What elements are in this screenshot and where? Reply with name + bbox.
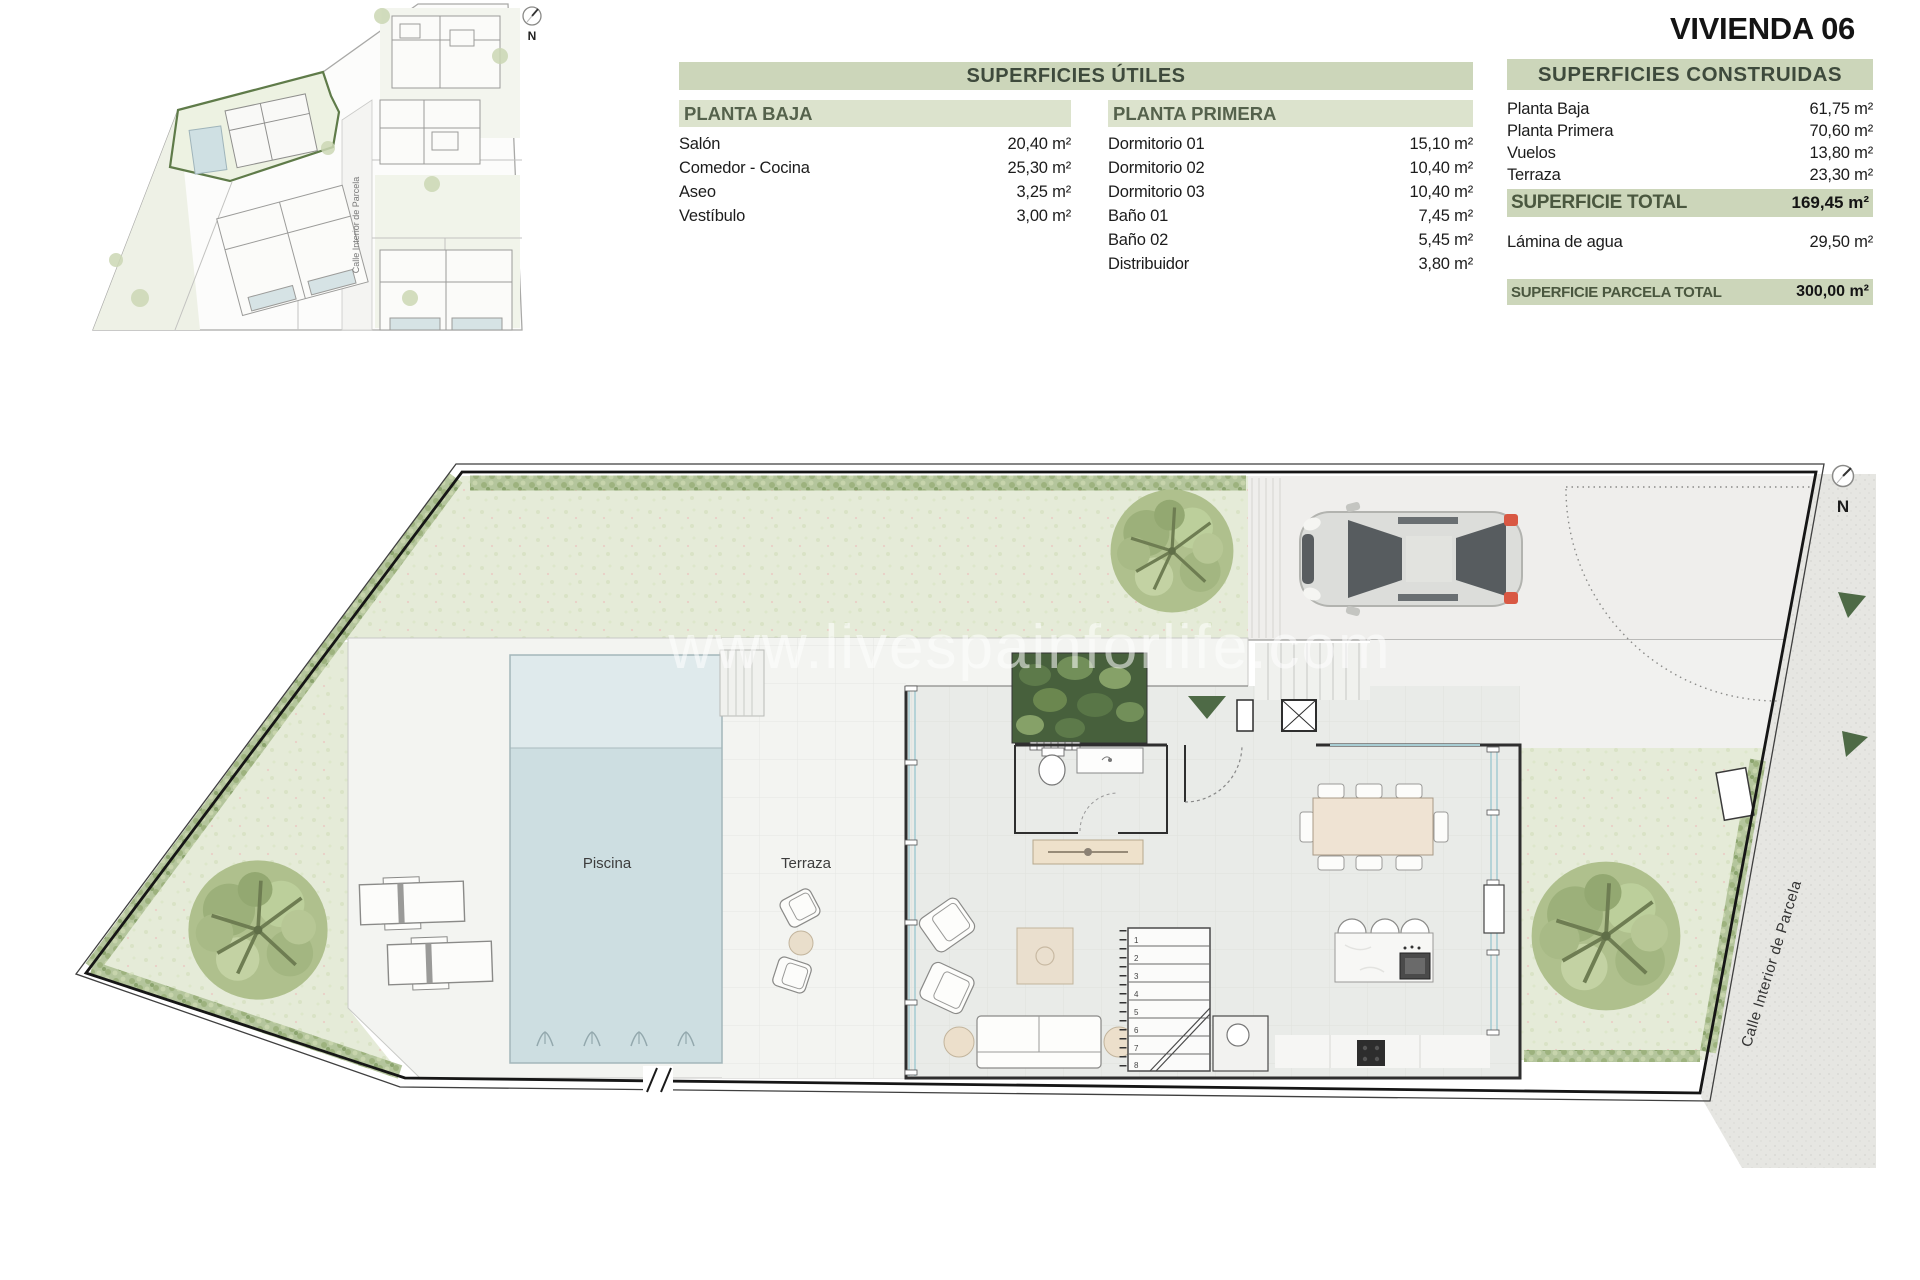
row-label: Lámina de agua xyxy=(1507,230,1623,254)
svg-text:7: 7 xyxy=(1134,1044,1139,1053)
north-compass-icon xyxy=(1833,466,1854,487)
north-label: N xyxy=(1837,497,1849,516)
boundary-break xyxy=(643,1066,673,1092)
sideboard xyxy=(1033,840,1143,864)
row-value: 10,40 m² xyxy=(1409,180,1473,204)
table-row: Planta Baja61,75 m² xyxy=(1507,98,1873,120)
row-label: SUPERFICIE PARCELA TOTAL xyxy=(1511,284,1722,301)
coffee-table xyxy=(1017,928,1073,984)
table-row: Terraza23,30 m² xyxy=(1507,164,1873,186)
superficie-parcela-row: SUPERFICIE PARCELA TOTAL 300,00 m² xyxy=(1507,279,1873,305)
row-value: 3,80 m² xyxy=(1418,252,1473,276)
svg-text:8: 8 xyxy=(1134,1061,1139,1070)
sliding-door-panel xyxy=(1484,885,1504,933)
table-row: Baño 017,45 m² xyxy=(1108,204,1473,228)
table-row: Distribuidor3,80 m² xyxy=(1108,252,1473,276)
row-value: 3,00 m² xyxy=(1016,204,1071,228)
car xyxy=(1300,501,1522,616)
tree-top xyxy=(1111,490,1234,613)
table-row: Baño 025,45 m² xyxy=(1108,228,1473,252)
site-north-label: N xyxy=(528,29,537,43)
planta-primera-header: PLANTA PRIMERA xyxy=(1108,100,1473,127)
terrace-label: Terraza xyxy=(781,855,832,872)
shaft xyxy=(1282,700,1316,731)
row-label: Salón xyxy=(679,132,720,156)
tree-right xyxy=(1532,862,1681,1011)
table-row: Dormitorio 0115,10 m² xyxy=(1108,132,1473,156)
construidas-header: SUPERFICIES CONSTRUIDAS xyxy=(1507,59,1873,90)
row-value: 20,40 m² xyxy=(1007,132,1071,156)
row-value: 10,40 m² xyxy=(1409,156,1473,180)
svg-text:5: 5 xyxy=(1134,1008,1139,1017)
stairs: 1 2 3 4 5 6 7 8 xyxy=(1123,928,1210,1071)
column xyxy=(1237,700,1253,731)
row-label: Aseo xyxy=(679,180,716,204)
row-label: Planta Primera xyxy=(1507,120,1613,142)
watermark: www.livespainforlife.com xyxy=(667,613,1391,682)
svg-text:1: 1 xyxy=(1134,936,1139,945)
table-row: Comedor - Cocina25,30 m² xyxy=(679,156,1071,180)
table-row: Aseo3,25 m² xyxy=(679,180,1071,204)
row-label: Baño 02 xyxy=(1108,228,1168,252)
kitchen-counter xyxy=(1275,1035,1490,1068)
svg-text:3: 3 xyxy=(1134,972,1139,981)
row-label: Distribuidor xyxy=(1108,252,1189,276)
row-value: 169,45 m² xyxy=(1792,193,1870,213)
table-row: Vuelos13,80 m² xyxy=(1507,142,1873,164)
tree-left xyxy=(188,860,327,999)
planta-primera-column: PLANTA PRIMERA Dormitorio 0115,10 m² Dor… xyxy=(1108,100,1473,276)
side-table xyxy=(944,1027,974,1057)
pool-label: Piscina xyxy=(583,855,632,872)
row-value: 300,00 m² xyxy=(1796,283,1869,301)
row-value: 5,45 m² xyxy=(1418,228,1473,252)
plan-sheet: { "title": "VIVIENDA 06", "site_plan": {… xyxy=(0,0,1920,1280)
row-label: Vestíbulo xyxy=(679,204,745,228)
cooktop xyxy=(1357,1040,1385,1066)
svg-text:2: 2 xyxy=(1134,954,1139,963)
site-plan: N Calle Interior de Parcela xyxy=(80,0,550,345)
table-row: Dormitorio 0310,40 m² xyxy=(1108,180,1473,204)
superficies-utiles-table: SUPERFICIES ÚTILES PLANTA BAJA Salón20,4… xyxy=(679,62,1473,292)
row-value: 7,45 m² xyxy=(1418,204,1473,228)
planta-baja-column: PLANTA BAJA Salón20,40 m² Comedor - Coci… xyxy=(679,100,1071,228)
lamina-agua-row: Lámina de agua 29,50 m² xyxy=(1507,230,1873,254)
superficie-total-row: SUPERFICIE TOTAL 169,45 m² xyxy=(1507,189,1873,217)
table-row: Planta Primera70,60 m² xyxy=(1507,120,1873,142)
row-value: 3,25 m² xyxy=(1016,180,1071,204)
terrace-table xyxy=(789,931,813,955)
planta-baja-header: PLANTA BAJA xyxy=(679,100,1071,127)
understairs-room xyxy=(1213,1016,1268,1071)
kitchen-island xyxy=(1335,919,1433,982)
table-row: Salón20,40 m² xyxy=(679,132,1071,156)
site-pool xyxy=(189,126,227,174)
table-row: Vestíbulo3,00 m² xyxy=(679,204,1071,228)
row-value: 70,60 m² xyxy=(1809,120,1873,142)
row-label: Planta Baja xyxy=(1507,98,1589,120)
house: 1 2 3 4 5 6 7 8 xyxy=(905,643,1520,1078)
table-row: Dormitorio 0210,40 m² xyxy=(1108,156,1473,180)
row-label: Dormitorio 01 xyxy=(1108,132,1204,156)
dining-table xyxy=(1313,798,1433,855)
row-label: Dormitorio 02 xyxy=(1108,156,1204,180)
row-label: SUPERFICIE TOTAL xyxy=(1511,192,1687,214)
row-value: 15,10 m² xyxy=(1409,132,1473,156)
svg-text:4: 4 xyxy=(1134,990,1139,999)
sofa xyxy=(977,1016,1101,1068)
row-label: Baño 01 xyxy=(1108,204,1168,228)
toilet xyxy=(1039,755,1065,785)
page-title: VIVIENDA 06 xyxy=(1507,8,1873,50)
row-value: 29,50 m² xyxy=(1809,230,1873,254)
row-label: Dormitorio 03 xyxy=(1108,180,1204,204)
row-value: 13,80 m² xyxy=(1809,142,1873,164)
superficies-construidas-panel: VIVIENDA 06 SUPERFICIES CONSTRUIDAS Plan… xyxy=(1507,8,1873,305)
north-compass-icon xyxy=(523,7,541,25)
svg-text:6: 6 xyxy=(1134,1026,1139,1035)
row-label: Vuelos xyxy=(1507,142,1556,164)
utiles-header: SUPERFICIES ÚTILES xyxy=(679,62,1473,90)
floor-plan: 1 2 3 4 5 6 7 8 xyxy=(0,440,1920,1280)
site-street-label: Calle Interior de Parcela xyxy=(351,177,361,274)
row-value: 25,30 m² xyxy=(1007,156,1071,180)
row-value: 61,75 m² xyxy=(1809,98,1873,120)
row-label: Terraza xyxy=(1507,164,1561,186)
row-label: Comedor - Cocina xyxy=(679,156,810,180)
row-value: 23,30 m² xyxy=(1809,164,1873,186)
